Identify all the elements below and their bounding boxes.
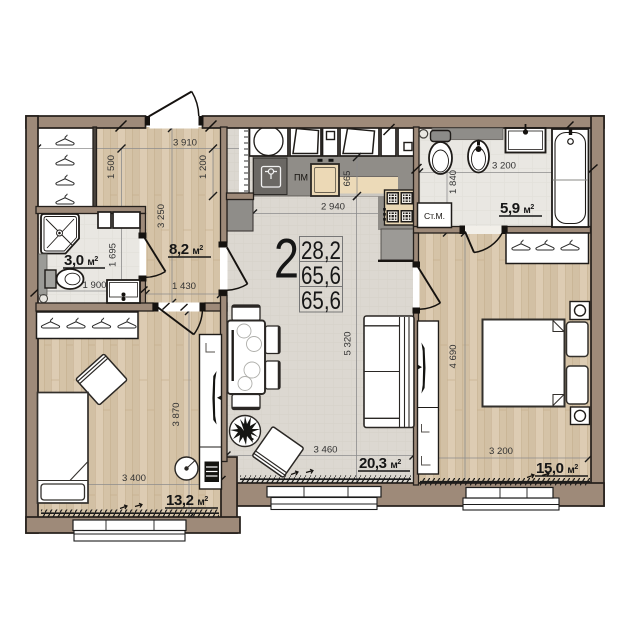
svg-text:ПМ: ПМ <box>294 173 308 183</box>
svg-text:28,2: 28,2 <box>301 237 341 265</box>
svg-text:5 320: 5 320 <box>343 331 354 355</box>
svg-text:3 460: 3 460 <box>313 445 337 456</box>
svg-text:1 430: 1 430 <box>172 281 196 292</box>
svg-text:1 900: 1 900 <box>82 280 106 291</box>
svg-text:2: 2 <box>274 227 299 290</box>
svg-text:1 500: 1 500 <box>106 155 117 179</box>
svg-text:3 870: 3 870 <box>171 402 182 426</box>
svg-text:2 940: 2 940 <box>321 202 345 213</box>
svg-text:3 250: 3 250 <box>156 204 167 228</box>
svg-text:3 400: 3 400 <box>122 473 146 484</box>
svg-text:1 695: 1 695 <box>108 243 119 267</box>
svg-text:Ст.М.: Ст.М. <box>424 211 445 221</box>
svg-text:65,6: 65,6 <box>301 287 341 315</box>
svg-text:1 840: 1 840 <box>448 170 459 194</box>
svg-text:1 200: 1 200 <box>198 155 209 179</box>
svg-text:3 200: 3 200 <box>492 161 516 172</box>
svg-text:4 690: 4 690 <box>448 344 459 368</box>
svg-text:65,6: 65,6 <box>301 262 341 290</box>
svg-text:3 910: 3 910 <box>173 138 197 149</box>
svg-text:665: 665 <box>342 170 353 186</box>
svg-text:3 200: 3 200 <box>489 446 513 457</box>
